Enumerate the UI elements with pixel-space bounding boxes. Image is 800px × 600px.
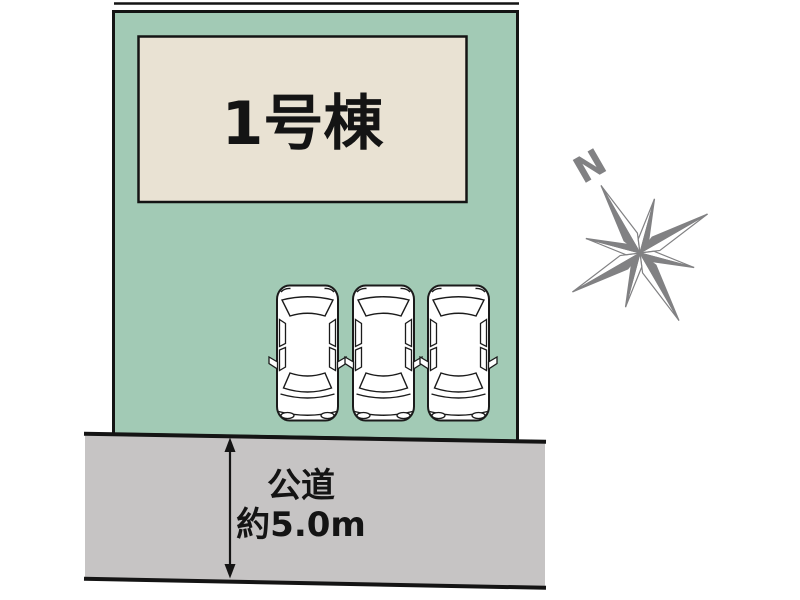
parking-area	[269, 286, 497, 421]
car-top-view	[269, 286, 346, 421]
car-top-view	[420, 286, 497, 421]
site-plan-diagram: 1号棟 公道 約5.0m N	[0, 0, 800, 600]
compass-rose: N	[512, 110, 746, 359]
car-top-view	[345, 286, 422, 421]
north-label: N	[567, 142, 614, 193]
building-label: 1号棟	[222, 89, 385, 159]
site-plan-canvas: 1号棟 公道 約5.0m N	[0, 0, 800, 600]
road-width-label: 約5.0m	[236, 505, 366, 545]
road-name-label: 公道	[267, 466, 335, 506]
